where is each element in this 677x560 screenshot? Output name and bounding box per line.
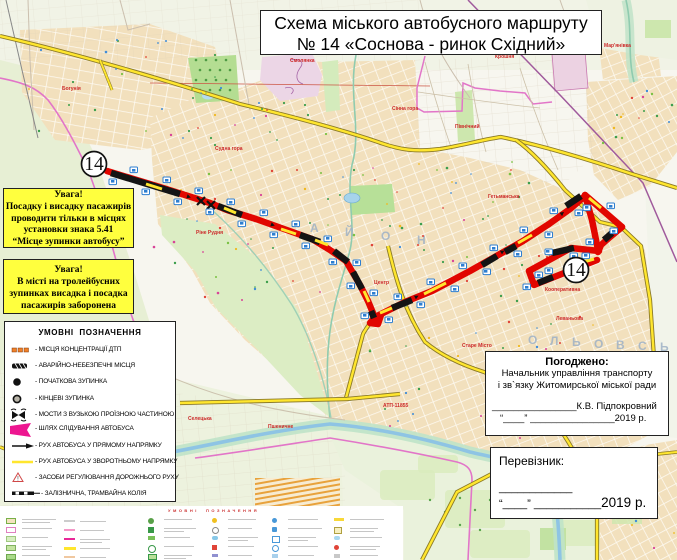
svg-text:Старе Місто: Старе Місто	[462, 343, 492, 349]
svg-text:Й: Й	[345, 224, 354, 239]
svg-text:АТП-11855: АТП-11855	[383, 403, 409, 409]
svg-text:Північний: Північний	[455, 123, 480, 130]
svg-text:Смолянка: Смолянка	[290, 58, 315, 64]
svg-text:О: О	[594, 337, 603, 351]
svg-text:Ь: Ь	[572, 335, 581, 349]
svg-text:А: А	[310, 221, 319, 235]
svg-text:Селецька: Селецька	[188, 416, 212, 422]
svg-text:14: 14	[566, 260, 586, 281]
svg-text:14: 14	[84, 154, 104, 175]
svg-text:В: В	[616, 338, 625, 352]
svg-text:Кооперативна: Кооперативна	[545, 287, 580, 293]
svg-text:О: О	[528, 333, 537, 347]
svg-text:Сінна гора: Сінна гора	[392, 106, 418, 112]
svg-text:Богунія: Богунія	[62, 86, 81, 92]
svg-text:Ріне Рудня: Ріне Рудня	[196, 230, 223, 236]
svg-text:Пшеничне: Пшеничне	[268, 424, 294, 430]
svg-text:Судна гора: Судна гора	[215, 146, 243, 152]
svg-text:Мар'янівка: Мар'янівка	[604, 43, 631, 49]
svg-text:Гетьманська: Гетьманська	[488, 194, 520, 200]
svg-text:Л: Л	[550, 334, 558, 348]
svg-text:Леваньова: Леваньова	[556, 316, 583, 322]
svg-text:О: О	[381, 229, 390, 243]
svg-text:Центр: Центр	[374, 280, 389, 286]
